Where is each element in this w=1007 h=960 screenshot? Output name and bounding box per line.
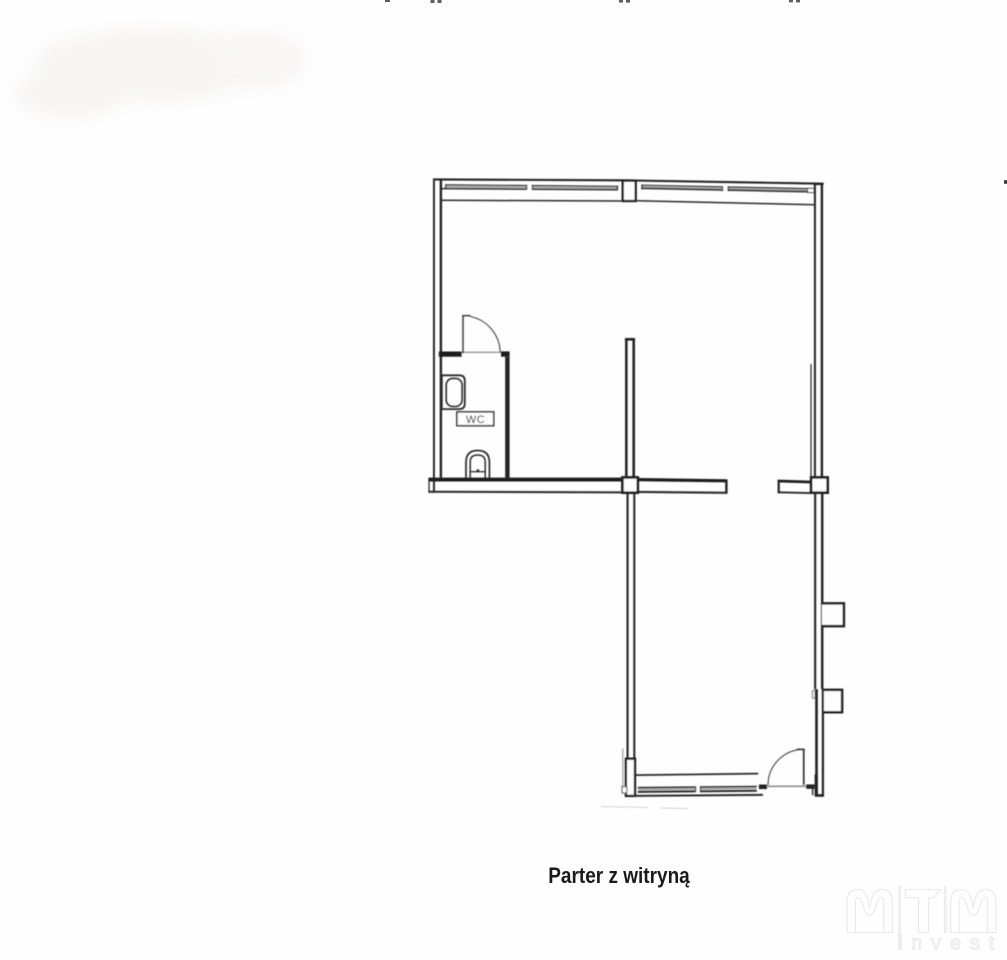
- svg-text:invest: invest: [898, 933, 1003, 955]
- svg-text:WC: WC: [466, 414, 486, 426]
- svg-text:Parter z witryną: Parter z witryną: [548, 863, 690, 888]
